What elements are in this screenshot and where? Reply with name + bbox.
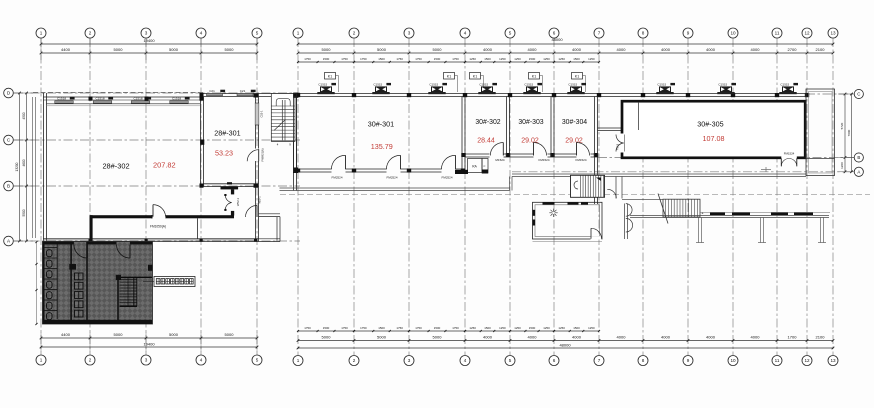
svg-text:1750: 1750 — [304, 326, 311, 330]
svg-text:1250: 1250 — [558, 57, 565, 61]
svg-text:28.44: 28.44 — [477, 137, 495, 144]
svg-text:1250: 1250 — [543, 57, 550, 61]
svg-text:M50-1: M50-1 — [258, 196, 262, 204]
svg-text:1: 1 — [297, 358, 300, 363]
svg-text:1750: 1750 — [341, 57, 348, 61]
svg-text:1250: 1250 — [588, 326, 595, 330]
svg-text:5500: 5500 — [22, 209, 26, 216]
svg-text:12: 12 — [804, 358, 810, 363]
svg-text:5000: 5000 — [433, 335, 443, 340]
svg-text:30#-304: 30#-304 — [562, 119, 587, 126]
svg-text:C1518: C1518 — [95, 96, 104, 100]
svg-text:5000: 5000 — [322, 335, 332, 340]
svg-text:1750: 1750 — [415, 57, 422, 61]
svg-text:C1515: C1515 — [568, 82, 577, 86]
svg-text:5000: 5000 — [225, 47, 235, 52]
svg-text:13200: 13200 — [15, 162, 19, 171]
svg-text:1: 1 — [297, 31, 300, 36]
svg-text:207.82: 207.82 — [153, 161, 176, 170]
svg-text:2: 2 — [89, 358, 92, 363]
svg-text:1: 1 — [40, 358, 43, 363]
svg-text:4000: 4000 — [483, 335, 493, 340]
svg-text:48000: 48000 — [559, 342, 571, 347]
svg-text:W52-1: W52-1 — [236, 197, 240, 206]
svg-text:5000: 5000 — [169, 47, 179, 52]
svg-text:1500: 1500 — [378, 57, 385, 61]
svg-text:6: 6 — [553, 358, 556, 363]
svg-text:13: 13 — [830, 31, 836, 36]
svg-text:30#-302: 30#-302 — [475, 119, 500, 126]
svg-text:FM0921(A): FM0921(A) — [261, 148, 265, 161]
svg-text:107.08: 107.08 — [703, 134, 725, 143]
svg-text:1500: 1500 — [529, 326, 536, 330]
svg-text:FM1050(A): FM1050(A) — [150, 224, 166, 228]
svg-text:1250: 1250 — [469, 57, 476, 61]
svg-text:1750: 1750 — [452, 326, 459, 330]
svg-text:C1515: C1515 — [524, 82, 533, 86]
svg-text:4400: 4400 — [61, 47, 71, 52]
svg-text:10: 10 — [730, 358, 736, 363]
svg-text:4: 4 — [464, 358, 467, 363]
svg-text:1250: 1250 — [469, 326, 476, 330]
svg-text:4600: 4600 — [22, 159, 26, 166]
svg-text:1250: 1250 — [543, 326, 550, 330]
svg-text:K1: K1 — [447, 75, 451, 79]
svg-text:1500: 1500 — [529, 57, 536, 61]
svg-text:7000: 7000 — [847, 129, 851, 136]
svg-text:4400: 4400 — [61, 332, 71, 337]
svg-text:5000: 5000 — [322, 47, 332, 52]
svg-text:29.02: 29.02 — [521, 137, 539, 144]
svg-text:2100: 2100 — [816, 47, 826, 52]
svg-text:4000: 4000 — [661, 47, 671, 52]
svg-text:5000: 5000 — [169, 332, 179, 337]
svg-text:A: A — [857, 169, 860, 174]
svg-text:8: 8 — [642, 31, 645, 36]
svg-text:19400: 19400 — [143, 341, 155, 346]
svg-text:7: 7 — [598, 358, 601, 363]
svg-text:Y: Y — [483, 165, 487, 167]
svg-text:FM2524: FM2524 — [441, 175, 452, 179]
svg-text:1500: 1500 — [484, 57, 491, 61]
svg-text:C1518: C1518 — [172, 96, 181, 100]
svg-text:5000: 5000 — [114, 47, 124, 52]
svg-text:1250: 1250 — [514, 326, 521, 330]
svg-text:4000: 4000 — [661, 335, 671, 340]
svg-text:5720: 5720 — [840, 122, 844, 129]
svg-text:5: 5 — [509, 31, 512, 36]
svg-text:9: 9 — [687, 31, 690, 36]
svg-text:1250: 1250 — [499, 326, 506, 330]
svg-text:1750: 1750 — [341, 326, 348, 330]
svg-text:C1515: C1515 — [318, 82, 327, 86]
svg-text:1750: 1750 — [304, 57, 311, 61]
svg-text:2: 2 — [89, 31, 92, 36]
svg-text:FM2524: FM2524 — [386, 175, 397, 179]
svg-text:4: 4 — [200, 358, 203, 363]
svg-text:C21: C21 — [209, 89, 215, 93]
svg-text:1: 1 — [40, 31, 43, 36]
svg-text:C: C — [857, 92, 860, 97]
svg-text:1750: 1750 — [360, 57, 367, 61]
svg-text:13: 13 — [830, 358, 836, 363]
svg-text:1750: 1750 — [396, 326, 403, 330]
svg-text:28#-301: 28#-301 — [214, 128, 240, 137]
svg-text:6: 6 — [553, 31, 556, 36]
svg-text:1500: 1500 — [573, 326, 580, 330]
svg-text:28#-302: 28#-302 — [102, 161, 129, 170]
svg-text:1500: 1500 — [434, 326, 441, 330]
svg-text:3: 3 — [408, 358, 411, 363]
svg-text:1750: 1750 — [360, 326, 367, 330]
svg-text:1500: 1500 — [434, 57, 441, 61]
svg-text:C1515: C1515 — [780, 82, 789, 86]
svg-text:53.23: 53.23 — [215, 149, 233, 158]
svg-text:9: 9 — [687, 358, 690, 363]
svg-text:1500: 1500 — [484, 326, 491, 330]
svg-text:5000: 5000 — [377, 47, 387, 52]
svg-text:4000: 4000 — [528, 335, 538, 340]
svg-text:3: 3 — [145, 31, 148, 36]
svg-text:K1: K1 — [532, 75, 536, 79]
svg-text:4000: 4000 — [751, 47, 761, 52]
svg-text:3: 3 — [408, 31, 411, 36]
svg-text:30#-301: 30#-301 — [368, 120, 394, 129]
svg-text:1750: 1750 — [415, 326, 422, 330]
svg-text:1500: 1500 — [323, 57, 330, 61]
svg-text:30#-303: 30#-303 — [518, 119, 543, 126]
svg-text:FM1524: FM1524 — [575, 158, 586, 162]
svg-text:10: 10 — [730, 31, 736, 36]
svg-text:C21: C21 — [240, 89, 246, 93]
svg-text:1750: 1750 — [452, 57, 459, 61]
svg-text:12: 12 — [804, 31, 810, 36]
svg-text:4000: 4000 — [617, 335, 627, 340]
svg-text:5000: 5000 — [225, 332, 235, 337]
svg-text:2: 2 — [353, 31, 356, 36]
svg-text:K1: K1 — [328, 75, 332, 79]
svg-text:1200: 1200 — [840, 162, 844, 169]
svg-text:1500: 1500 — [573, 57, 580, 61]
svg-text:5000: 5000 — [433, 47, 443, 52]
svg-text:C52-1: C52-1 — [260, 110, 264, 118]
svg-text:4: 4 — [464, 31, 467, 36]
svg-text:B: B — [857, 155, 860, 160]
svg-text:4000: 4000 — [751, 335, 761, 340]
svg-text:1700: 1700 — [788, 335, 798, 340]
svg-text:5000: 5000 — [377, 335, 387, 340]
svg-text:19400: 19400 — [143, 38, 155, 43]
svg-text:FM1524: FM1524 — [784, 152, 795, 156]
svg-text:30#-305: 30#-305 — [697, 119, 723, 128]
svg-text:8: 8 — [642, 358, 645, 363]
svg-text:1750: 1750 — [396, 57, 403, 61]
svg-text:2100: 2100 — [816, 335, 826, 340]
svg-text:C1515: C1515 — [718, 82, 727, 86]
svg-text:5: 5 — [509, 358, 512, 363]
svg-text:C1518: C1518 — [57, 96, 66, 100]
svg-text:11: 11 — [775, 31, 780, 36]
svg-text:11: 11 — [775, 358, 780, 363]
svg-text:1250: 1250 — [499, 57, 506, 61]
svg-text:5000: 5000 — [114, 332, 124, 337]
svg-text:1500: 1500 — [323, 326, 330, 330]
svg-text:4: 4 — [200, 31, 203, 36]
svg-text:1250: 1250 — [558, 326, 565, 330]
svg-text:C1518: C1518 — [133, 96, 142, 100]
svg-text:4000: 4000 — [572, 47, 582, 52]
svg-text:FM15: FM15 — [617, 143, 620, 150]
svg-text:2700: 2700 — [788, 47, 798, 52]
svg-text:3: 3 — [145, 358, 148, 363]
svg-text:4000: 4000 — [617, 47, 627, 52]
svg-text:C1515: C1515 — [429, 82, 438, 86]
svg-text:2: 2 — [353, 358, 356, 363]
svg-text:1250: 1250 — [514, 57, 521, 61]
svg-text:FM1524: FM1524 — [538, 158, 549, 162]
svg-text:4500: 4500 — [22, 112, 26, 119]
svg-text:4000: 4000 — [483, 47, 493, 52]
svg-text:1250: 1250 — [588, 57, 595, 61]
svg-text:C1515: C1515 — [657, 82, 666, 86]
svg-text:4000: 4000 — [572, 335, 582, 340]
svg-text:C1515: C1515 — [373, 82, 382, 86]
svg-text:135.79: 135.79 — [371, 142, 393, 151]
svg-text:B: B — [7, 184, 10, 189]
svg-text:K1: K1 — [575, 75, 579, 79]
svg-text:7: 7 — [598, 31, 601, 36]
svg-text:4000: 4000 — [528, 47, 538, 52]
svg-text:4000: 4000 — [706, 47, 716, 52]
svg-text:K1: K1 — [473, 75, 477, 79]
svg-text:C1515: C1515 — [479, 82, 488, 86]
svg-text:5: 5 — [256, 31, 259, 36]
svg-text:1500: 1500 — [378, 326, 385, 330]
svg-text:5: 5 — [256, 358, 259, 363]
svg-text:M1524: M1524 — [495, 158, 505, 162]
svg-text:FM2524: FM2524 — [331, 175, 342, 179]
svg-text:4000: 4000 — [706, 335, 716, 340]
